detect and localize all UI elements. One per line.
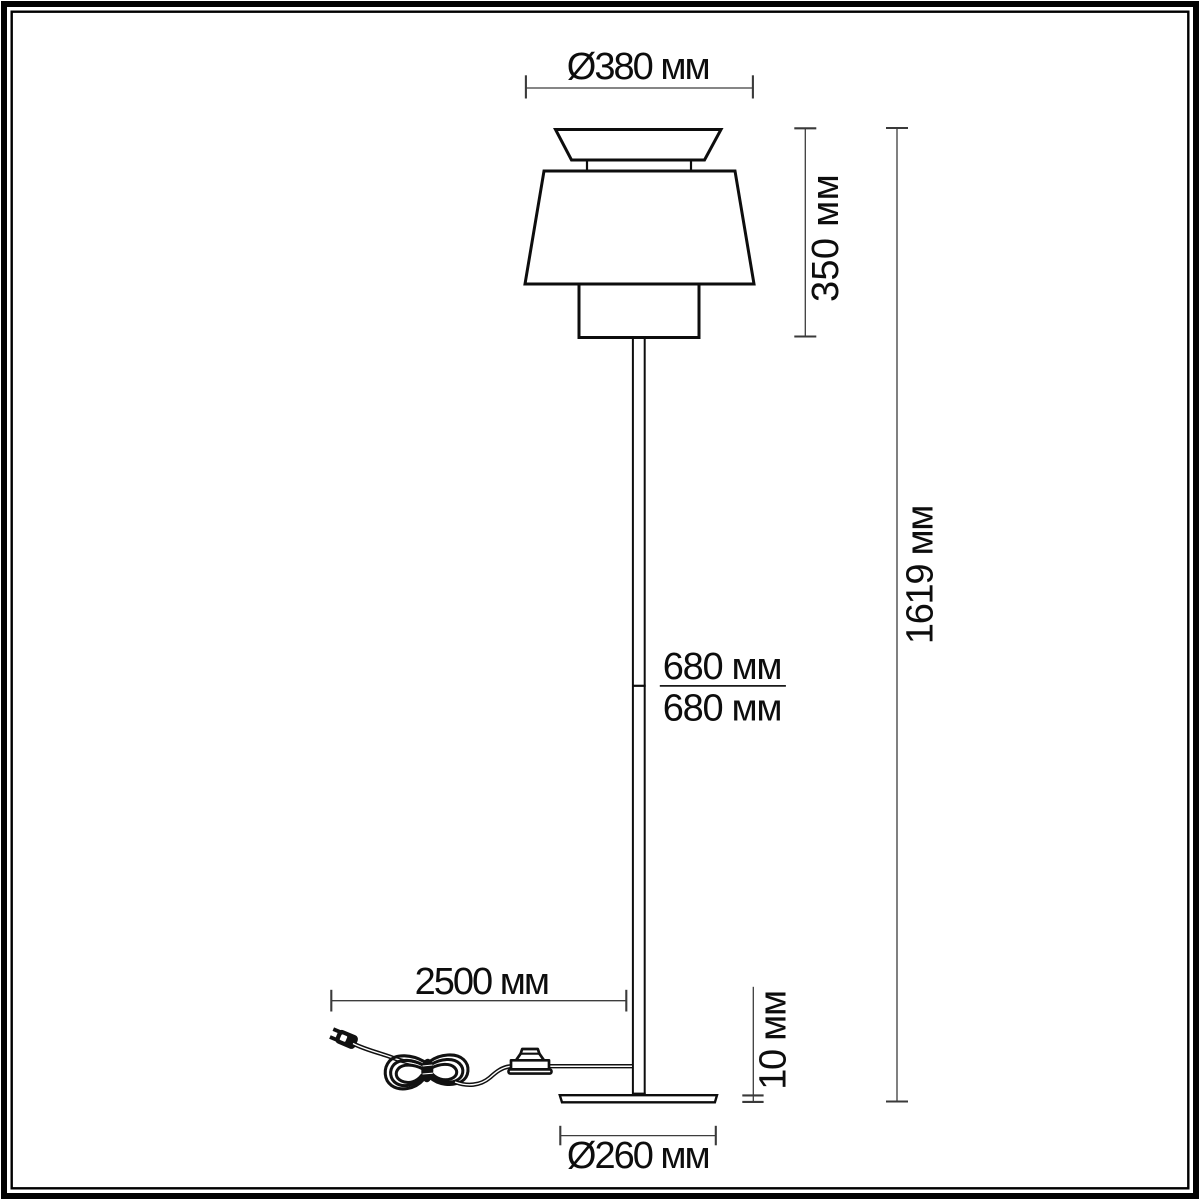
svg-text:680 мм: 680 мм <box>663 646 781 688</box>
svg-text:680 мм: 680 мм <box>663 688 781 730</box>
svg-text:10 мм: 10 мм <box>753 991 795 1090</box>
svg-text:2500 мм: 2500 мм <box>415 961 548 1003</box>
svg-text:350 мм: 350 мм <box>805 174 847 302</box>
svg-text:Ø260 мм: Ø260 мм <box>567 1135 709 1177</box>
svg-text:1619 мм: 1619 мм <box>900 506 942 644</box>
svg-text:Ø380 мм: Ø380 мм <box>567 46 709 88</box>
